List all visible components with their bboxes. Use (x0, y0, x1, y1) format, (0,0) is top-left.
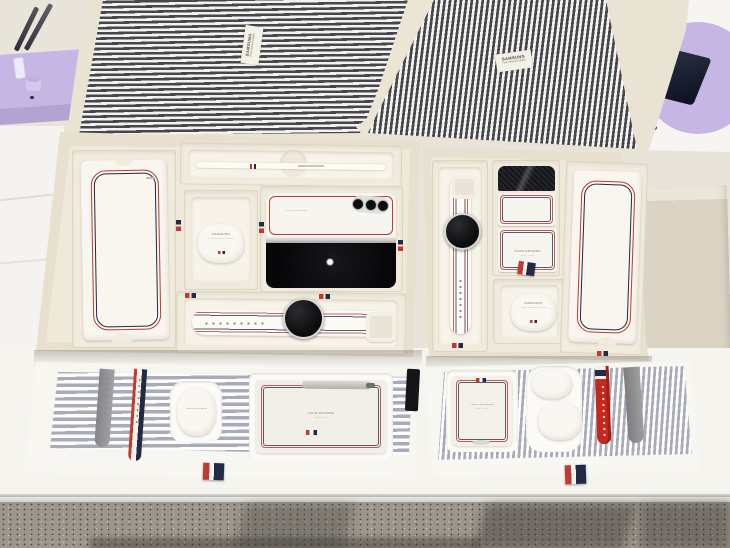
box-print-mark (146, 177, 155, 179)
floor-shadow (640, 502, 730, 548)
earbuds-right-brand: SAMSUNG (511, 302, 556, 305)
camera-lens (364, 198, 377, 211)
floor-shadow (90, 538, 480, 548)
strap-holes (629, 375, 637, 423)
tricolor-tab (176, 220, 181, 231)
display-dot (30, 96, 34, 99)
earbuds-left-sub: Thom Browne Edition (198, 238, 244, 240)
tricolor-tab (398, 240, 403, 251)
charger-pod-2 (538, 402, 582, 440)
earbuds-left-tricolor (218, 251, 225, 254)
watch-strap-holes-right (457, 278, 464, 320)
drawer-flip-case (452, 376, 512, 446)
strap-holes (101, 375, 109, 417)
s-pen-accessory-tip (366, 383, 375, 388)
charger-pod-1 (532, 369, 572, 399)
tricolor-tag (306, 430, 317, 435)
watch-face-right (444, 213, 481, 250)
tricolor-tab (452, 343, 463, 348)
z-flip-panel-1 (498, 193, 555, 226)
grosgrain-tab-left (203, 463, 225, 481)
strap-holes (133, 377, 140, 423)
tb-outline-left-box (91, 169, 162, 330)
s-pen-stripe-navy (254, 164, 256, 169)
flip-case-brand: THOM BROWNE (452, 404, 512, 407)
strap-holes (600, 384, 606, 438)
tricolor-tab (259, 222, 264, 233)
watch-buckle-left (366, 312, 396, 342)
drawer-earbuds-brand: THOM BROWNE (177, 408, 216, 411)
flip-case-outline (456, 380, 508, 442)
z-fold-camera-module (351, 195, 389, 215)
finger-notch (112, 333, 132, 342)
strap-red-drawer (595, 366, 612, 444)
drawer-earbuds-sub: NEW YORK (177, 412, 216, 414)
watch-buckle-right (451, 175, 478, 199)
s-pen-stripe-red (250, 164, 252, 169)
tricolor-tab (319, 294, 330, 299)
grosgrain-tab-right (565, 465, 587, 485)
s-pen-accessory (302, 381, 372, 390)
earbuds-case-left (198, 224, 244, 263)
box-gap-slot (405, 369, 420, 412)
z-flip-carbon-panel (498, 166, 555, 191)
watch-strap-holes (203, 320, 265, 327)
drawer-case-sub: NEW YORK (256, 417, 386, 419)
earbuds-case-right (511, 294, 556, 331)
earbuds-right-sub: Thom Browne Edition (511, 307, 556, 309)
earbuds-right-tricolor (530, 320, 537, 323)
tb-outline-right-box (576, 180, 635, 334)
drawer-case-brand: THOM BROWNE (256, 412, 386, 415)
z-fold-brand: THOM BROWNE (276, 210, 316, 213)
flip-case-tricolor (476, 378, 486, 382)
earbuds-left-brand: SAMSUNG (198, 233, 244, 236)
z-flip-sub: NEW YORK (498, 255, 557, 257)
screen-reflection-dot (326, 258, 334, 266)
tricolor-tab (185, 293, 196, 298)
scene-photo: SAMSUNG Thom Browne Edition SAMSUNG Thom… (0, 0, 730, 548)
z-flip-panel-1-outline (500, 195, 553, 224)
grosgrain-ribbon (517, 261, 536, 276)
flip-case-tab (472, 440, 490, 445)
floor-shadow (474, 504, 636, 548)
watch-face-left (283, 298, 324, 339)
camera-lens (352, 197, 365, 210)
camera-lens (376, 199, 389, 212)
flip-case-sub: NEW YORK (452, 408, 512, 410)
s-pen-print (298, 165, 324, 167)
z-flip-brand: THOM BROWNE (498, 250, 557, 253)
display-cup-top (27, 76, 40, 82)
